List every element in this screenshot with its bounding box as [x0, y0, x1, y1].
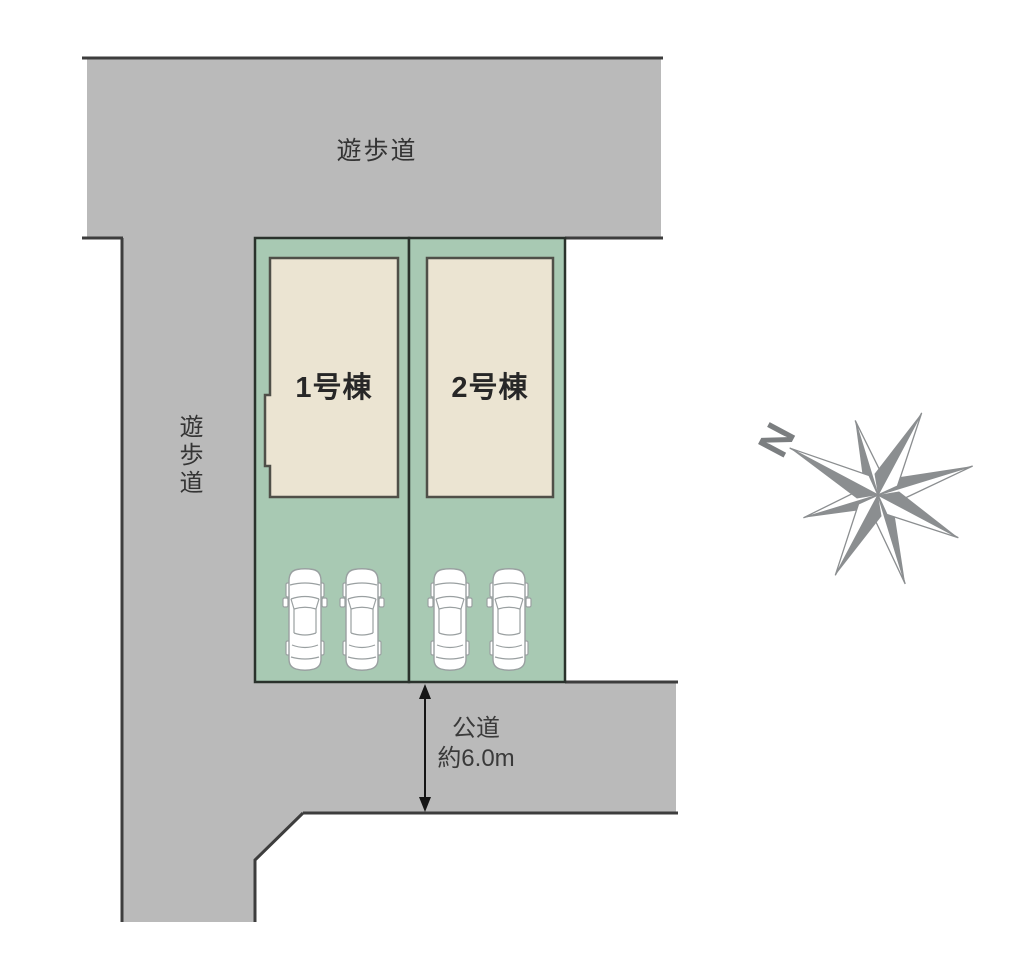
compass-rose-icon [747, 366, 1002, 618]
site-plan-canvas [0, 0, 1024, 957]
promenade-left-label: 遊歩道 [174, 414, 206, 514]
road-width-label: 約6.0m [420, 744, 532, 774]
car-icon [340, 569, 384, 671]
site-plan: 遊歩道 遊歩道 1号棟 2号棟 公道 約6.0m N [0, 0, 1024, 957]
promenade-top-label: 遊歩道 [297, 131, 457, 167]
car-icon [428, 569, 472, 671]
car-icon [283, 569, 327, 671]
road-name-label: 公道 [420, 714, 532, 744]
building-2-label: 2号棟 [427, 364, 553, 406]
car-icon [487, 569, 531, 671]
building-1-label: 1号棟 [270, 364, 398, 406]
public-road-label: 公道 約6.0m [420, 714, 532, 774]
